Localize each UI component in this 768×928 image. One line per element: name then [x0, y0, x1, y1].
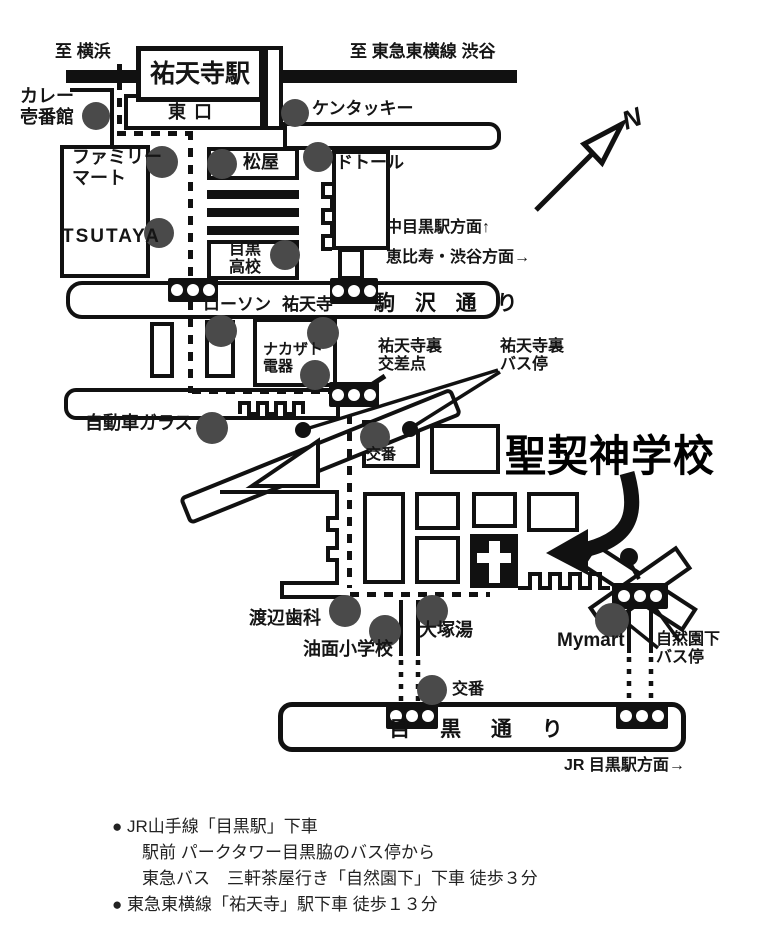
cross-icon-arm	[477, 553, 511, 563]
block-grid-c3a	[472, 492, 517, 528]
label-doutor: ドトール	[336, 153, 404, 173]
crosswalk-dot	[650, 590, 662, 602]
railway-line-east	[283, 70, 517, 83]
directions-line-2: 駅前 パークタワー目黒脇のバス停から	[142, 838, 435, 863]
label-curry: カレー 壱番館	[20, 86, 74, 127]
route-segment-3	[188, 131, 193, 393]
destination-arrow	[580, 473, 632, 551]
dot-doutor	[303, 142, 333, 172]
label-matsuya: 松屋	[243, 152, 279, 173]
crosswalk-dot	[634, 590, 646, 602]
label-otsuka: 大塚湯	[419, 620, 473, 641]
directions-line-1: ● JR山手線「目黒駅」下車	[112, 812, 318, 837]
label-nakameguro-direction: 中目黒駅方面↑	[386, 219, 490, 237]
street-meguro-label: 目 黒 通 り	[278, 713, 686, 743]
signal-stub	[630, 563, 639, 579]
east-exit-label: 東口	[168, 102, 220, 123]
crosswalk-dot	[187, 284, 199, 296]
label-glass: 自動車ガラス	[85, 413, 193, 434]
label-jr-meguro-direction: JR 目黒駅方面→	[564, 757, 685, 775]
wall-teeth-doutor-block	[323, 184, 332, 249]
block-lawson-west	[150, 322, 174, 378]
dot-curry	[82, 102, 110, 130]
busstop-dot-west	[295, 422, 311, 438]
crosswalk-yutenji-ura	[329, 382, 379, 407]
block-grid-c2b	[415, 536, 460, 584]
label-busstop-yutenji-ura: 祐天寺裏 バス停	[500, 338, 564, 375]
dot-meguro-hs	[270, 240, 300, 270]
street-edge-west1	[70, 88, 114, 92]
street-komazawa-label: 駒 沢 通 り	[374, 287, 525, 317]
dot-kentucky	[281, 99, 309, 127]
dot-glass	[196, 412, 228, 444]
route-segment-2	[117, 131, 193, 136]
label-mymart: Mymart	[557, 630, 625, 652]
label-watanabe: 渡辺歯科	[249, 608, 321, 629]
label-meguro-hs: 目黒 高校	[229, 241, 261, 276]
label-crossing: 祐天寺裏 交差点	[378, 338, 442, 375]
label-koban-lower: 交番	[452, 681, 484, 699]
crosswalk-dot	[348, 285, 360, 297]
building-strip-1	[207, 190, 299, 199]
railway-line-west	[66, 70, 138, 83]
pointer-busstop1b	[411, 372, 500, 428]
label-koban-upper: 交番	[366, 446, 396, 463]
label-yutenji-temple: 祐天寺	[282, 295, 333, 315]
railway-label-west: 至 横浜	[55, 42, 111, 62]
building-strip-2	[207, 208, 299, 217]
north-arrow-line	[536, 132, 614, 210]
railway-label-east: 至 東急東横線 渋谷	[350, 42, 495, 62]
route-segment-6	[350, 592, 490, 597]
wedge-block	[252, 441, 318, 486]
station-side-box	[264, 46, 283, 130]
label-nakazato: ナカザト 電器	[263, 341, 323, 376]
block-grid-c4	[527, 492, 579, 532]
crosswalk-dot	[364, 389, 376, 401]
crosswalk-dot	[618, 590, 630, 602]
north-arrow-head	[584, 124, 622, 163]
station-name: 祐天寺駅	[150, 60, 250, 89]
access-map: 至 横浜 至 東急東横線 渋谷 祐天寺駅 東口 駒 沢 通 り 目 黒 通 り	[0, 0, 768, 928]
directions-line-3: 東急バス 三軒茶屋行き「自然園下」下車 徒歩３分	[142, 864, 538, 889]
route-segment-5	[347, 398, 352, 588]
destination-title: 聖契神学校	[505, 420, 715, 484]
block-grid-ne	[430, 424, 500, 474]
crosswalk-dot	[332, 389, 344, 401]
block-grid-c2a	[415, 492, 460, 530]
crosswalk-dot	[332, 285, 344, 297]
crosswalk-dot	[348, 389, 360, 401]
crosswalk-komazawa-east	[330, 278, 378, 304]
street-edge-step	[220, 492, 345, 597]
label-aburamen: 油面小学校	[303, 639, 393, 660]
dot-watanabe	[329, 595, 361, 627]
label-busstop-shizenen: 自然園下 バス停	[656, 631, 720, 668]
label-kentucky: ケンタッキー	[312, 99, 414, 119]
dot-lawson	[205, 315, 237, 347]
label-tsutaya: TSUTAYA	[62, 226, 161, 248]
wall-teeth-church	[518, 574, 610, 588]
north-label: N	[618, 101, 647, 136]
route-segment-1	[117, 64, 122, 134]
dot-koban-lower	[417, 675, 447, 705]
block-grid-c1	[363, 492, 405, 584]
station-box: 祐天寺駅	[136, 46, 264, 102]
busstop-corner-box	[338, 248, 364, 280]
dot-matsuya	[207, 149, 237, 179]
pointer-shizenen-a	[627, 623, 658, 648]
signal-dot-shizenen	[620, 548, 638, 566]
directions-line-4: ● 東急東横線「祐天寺」駅下車 徒歩１３分	[112, 890, 438, 915]
building-strip-3	[207, 226, 299, 235]
label-ebisu-direction: 恵比寿・渋谷方面→	[386, 249, 530, 267]
label-family-mart: ファミリー マート	[72, 147, 162, 188]
label-lawson: ローソン	[203, 295, 271, 315]
destination-arrow-head	[546, 529, 588, 575]
crosswalk-dot	[171, 284, 183, 296]
street-edge-west2	[110, 88, 114, 146]
